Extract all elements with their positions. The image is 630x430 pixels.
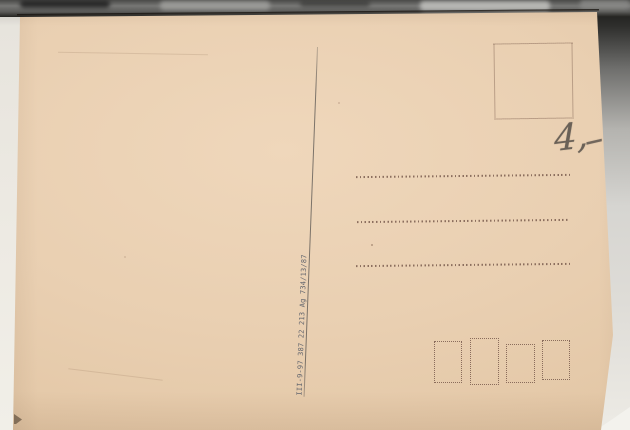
blur-patch	[300, 0, 370, 7]
postal-code-box	[542, 340, 570, 380]
address-line	[356, 263, 571, 267]
postcard-back: III-9-97 387 22 213 Ag 734/13/87 4, –	[0, 0, 630, 430]
blur-patch	[160, 1, 270, 10]
address-line	[357, 219, 569, 223]
divider-line	[304, 47, 318, 397]
paper-crease	[58, 52, 208, 56]
paper-speck	[124, 256, 126, 258]
address-line	[356, 174, 570, 178]
paper-speck	[371, 244, 373, 246]
paper-speck	[338, 102, 340, 104]
paper-crease	[68, 368, 162, 381]
blur-patch	[580, 0, 630, 9]
stamp-box	[493, 42, 573, 119]
postal-code-box	[434, 341, 462, 383]
corner-chip	[14, 414, 22, 424]
blur-patch	[20, 0, 110, 8]
postal-code-box	[506, 344, 535, 383]
postal-code-box	[470, 338, 499, 385]
